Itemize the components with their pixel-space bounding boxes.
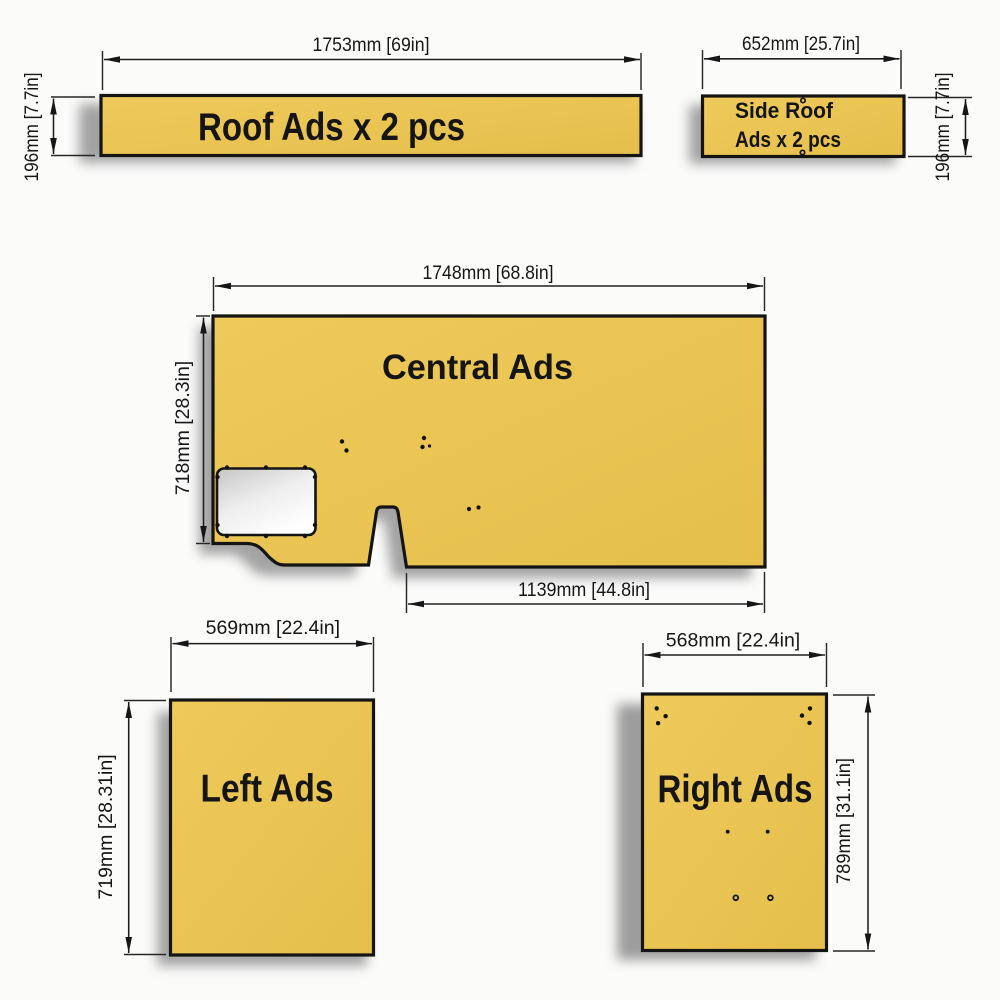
svg-text:Side Roof: Side Roof (735, 98, 833, 123)
svg-text:1748mm [68.8in]: 1748mm [68.8in] (423, 262, 554, 284)
svg-text:Left Ads: Left Ads (201, 768, 334, 811)
svg-text:Roof Ads x 2 pcs: Roof Ads x 2 pcs (198, 106, 465, 149)
svg-text:Central Ads: Central Ads (382, 348, 573, 387)
svg-text:719mm [28.31in]: 719mm [28.31in] (95, 754, 117, 899)
svg-text:718mm [28.3in]: 718mm [28.3in] (172, 361, 194, 495)
svg-text:568mm [22.4in]: 568mm [22.4in] (666, 630, 800, 652)
svg-text:652mm [25.7in]: 652mm [25.7in] (742, 33, 860, 55)
svg-text:Right Ads: Right Ads (658, 768, 813, 811)
svg-text:1753mm [69in]: 1753mm [69in] (313, 34, 430, 56)
svg-text:Ads x 2 pcs: Ads x 2 pcs (735, 127, 841, 152)
svg-text:1139mm [44.8in]: 1139mm [44.8in] (518, 579, 650, 601)
svg-text:196mm [7.7in]: 196mm [7.7in] (932, 73, 954, 182)
svg-text:569mm [22.4in]: 569mm [22.4in] (206, 617, 340, 639)
svg-text:196mm [7.7in]: 196mm [7.7in] (21, 73, 43, 182)
svg-text:789mm [31.1in]: 789mm [31.1in] (833, 758, 855, 884)
